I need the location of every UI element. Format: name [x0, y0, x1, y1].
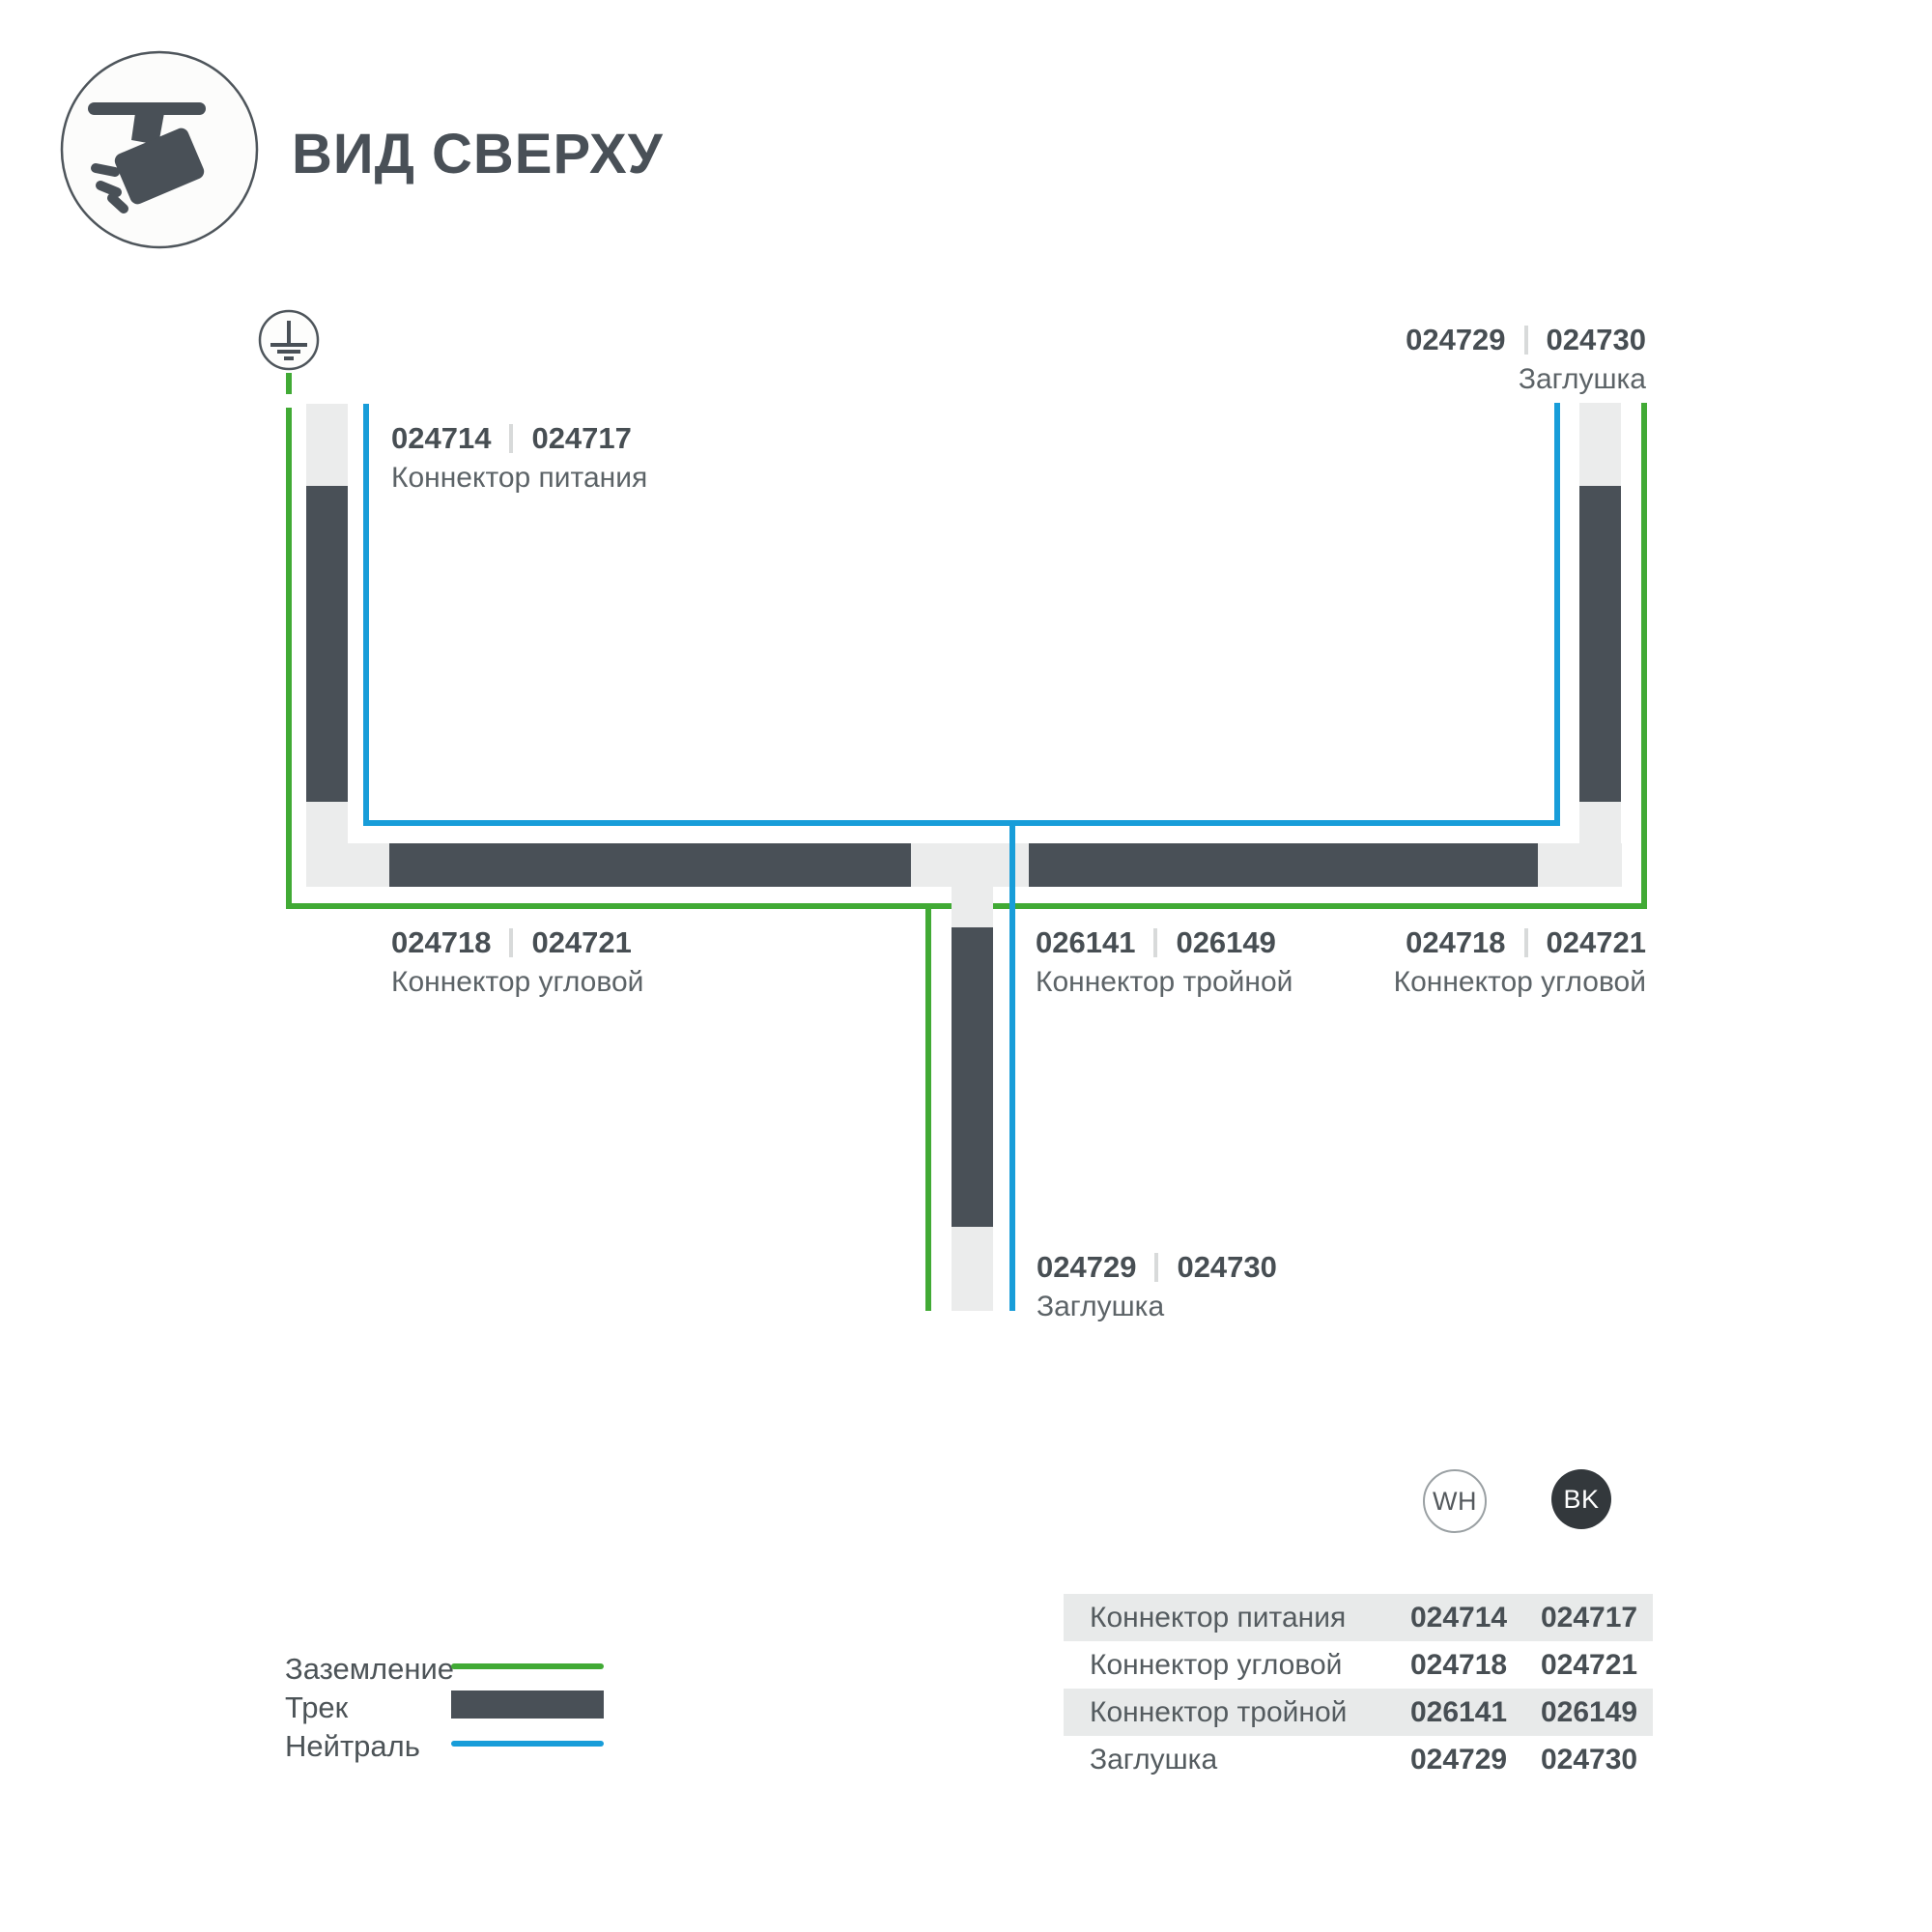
code-divider — [1154, 1253, 1158, 1282]
end-cap-top-right — [1579, 403, 1621, 486]
code-divider — [1524, 326, 1528, 355]
label-end-cap-top-name: Заглушка — [1406, 365, 1646, 394]
part-code-bk: 024730 — [1541, 1744, 1628, 1776]
table-row: Коннектор питания 024714 024717 — [1064, 1594, 1653, 1641]
label-end-cap-bottom-name: Заглушка — [1037, 1293, 1277, 1321]
code-bk: 024717 — [531, 423, 631, 453]
track-horizontal-left — [389, 843, 911, 887]
label-end-cap-top: 024729 024730 Заглушка — [1406, 325, 1646, 394]
end-cap-bottom — [952, 1227, 993, 1311]
code-bk: 024730 — [1177, 1252, 1276, 1282]
part-code-bk: 026149 — [1541, 1696, 1628, 1729]
code-wh: 024714 — [391, 423, 491, 453]
label-corner-right-name: Коннектор угловой — [1394, 968, 1646, 997]
table-row: Коннектор угловой 024718 024721 — [1064, 1641, 1653, 1689]
part-code-wh: 026141 — [1410, 1696, 1497, 1729]
ground-wire-stem-vertical — [925, 903, 931, 1311]
code-wh: 024718 — [391, 927, 491, 957]
label-tee-name: Коннектор тройной — [1036, 968, 1293, 997]
tee-connector-stem — [952, 886, 993, 927]
page-title: ВИД СВЕРХУ — [292, 122, 664, 186]
code-divider — [509, 424, 513, 453]
part-code-wh: 024714 — [1410, 1602, 1497, 1634]
label-corner-left-codes: 024718 024721 — [391, 927, 643, 957]
variant-badge-white: WH — [1423, 1469, 1487, 1533]
code-wh: 024729 — [1037, 1252, 1136, 1282]
parts-table: Коннектор питания 024714 024717 Коннекто… — [1064, 1594, 1653, 1783]
code-bk: 024730 — [1547, 325, 1646, 355]
part-code-wh: 024729 — [1410, 1744, 1497, 1776]
power-connector-piece — [306, 404, 348, 486]
label-tee-connector: 026141 026149 Коннектор тройной — [1036, 927, 1293, 997]
label-corner-right-codes: 024718 024721 — [1394, 927, 1646, 957]
legend-swatch-blue-line — [451, 1741, 604, 1747]
label-power-codes: 024714 024717 — [391, 423, 647, 453]
legend-item-track: Трек — [285, 1687, 604, 1723]
track-right-vertical — [1579, 486, 1621, 802]
label-end-cap-top-codes: 024729 024730 — [1406, 325, 1646, 355]
table-row: Коннектор тройной 026141 026149 — [1064, 1689, 1653, 1736]
legend-swatch-green-line — [451, 1663, 604, 1669]
code-divider — [509, 928, 513, 957]
legend-swatch-track-bar — [451, 1690, 604, 1719]
track-left-vertical — [306, 486, 348, 802]
label-end-cap-bottom: 024729 024730 Заглушка — [1037, 1252, 1277, 1321]
track-horizontal-right — [1029, 843, 1538, 887]
legend-label-ground: Заземление — [285, 1652, 454, 1687]
legend-item-ground: Заземление — [285, 1648, 604, 1685]
corner-connector-right-horizontal — [1538, 843, 1622, 887]
track-stem-vertical — [952, 927, 993, 1227]
ground-wire-left-vertical — [286, 419, 292, 909]
ground-wire-dashed-segment — [286, 373, 292, 421]
code-bk: 026149 — [1176, 927, 1275, 957]
neutral-wire-left-vertical — [363, 404, 369, 826]
neutral-wire-right-vertical — [1554, 403, 1560, 826]
neutral-wire-top-horizontal — [363, 820, 1560, 826]
part-name: Коннектор питания — [1064, 1602, 1410, 1634]
code-bk: 024721 — [1547, 927, 1646, 957]
ground-wire-right-vertical — [1641, 403, 1647, 909]
part-name: Коннектор тройной — [1064, 1696, 1410, 1729]
part-name: Заглушка — [1064, 1744, 1410, 1776]
code-bk: 024721 — [531, 927, 631, 957]
variant-badge-black: BK — [1551, 1469, 1611, 1529]
corner-connector-left-horizontal — [306, 843, 389, 887]
part-code-bk: 024717 — [1541, 1602, 1628, 1634]
part-code-bk: 024721 — [1541, 1649, 1628, 1682]
code-divider — [1153, 928, 1157, 957]
legend-item-neutral: Нейтраль — [285, 1725, 604, 1762]
legend-label-neutral: Нейтраль — [285, 1729, 420, 1764]
code-wh: 024729 — [1406, 325, 1505, 355]
table-row: Заглушка 024729 024730 — [1064, 1736, 1653, 1783]
part-code-wh: 024718 — [1410, 1649, 1497, 1682]
label-corner-connector-right: 024718 024721 Коннектор угловой — [1394, 927, 1646, 997]
label-corner-connector-left: 024718 024721 Коннектор угловой — [391, 927, 643, 997]
label-tee-codes: 026141 026149 — [1036, 927, 1293, 957]
page: ВИД СВЕРХУ 024714 — [0, 0, 1932, 1932]
legend-label-track: Трек — [285, 1690, 348, 1725]
part-name: Коннектор угловой — [1064, 1649, 1410, 1682]
code-wh: 026141 — [1036, 927, 1135, 957]
neutral-wire-stem-vertical — [1009, 820, 1015, 1311]
label-corner-left-name: Коннектор угловой — [391, 968, 643, 997]
label-end-cap-bottom-codes: 024729 024730 — [1037, 1252, 1277, 1282]
track-light-top-view-icon — [59, 49, 260, 250]
label-power-connector: 024714 024717 Коннектор питания — [391, 423, 647, 493]
label-power-name: Коннектор питания — [391, 464, 647, 493]
code-divider — [1524, 928, 1528, 957]
earth-ground-icon — [257, 308, 321, 372]
code-wh: 024718 — [1406, 927, 1505, 957]
